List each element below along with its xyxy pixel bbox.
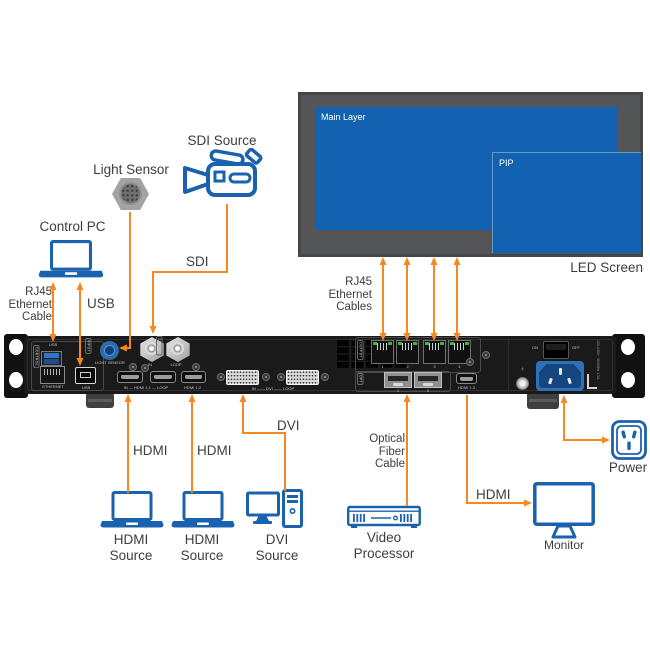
connection-diagram: Main Layer PIP LED Screen Control PC Lig… xyxy=(0,0,650,650)
dvi-loop-port xyxy=(286,370,319,385)
led-screen-caption: LED Screen xyxy=(555,260,643,276)
rj45-number-3: 3 xyxy=(423,365,446,369)
rj45-out-port-2 xyxy=(396,340,419,364)
hdmi-source-2-icon xyxy=(171,491,235,531)
hdmi-cable-1-label: HDMI xyxy=(133,443,173,459)
hdmi-1-3-label: HDMI 1.3 xyxy=(450,386,483,390)
sdi-camera-icon xyxy=(181,148,263,204)
dvi-cable-label: DVI xyxy=(277,418,309,434)
pip-label: PIP xyxy=(499,158,514,168)
hdmi-1-3-port xyxy=(456,373,477,384)
rj45-out-port-3 xyxy=(423,340,446,364)
light-sensor-icon xyxy=(112,178,149,210)
usb-a-label: USB xyxy=(45,343,61,347)
output-group-badge: OUTPUT xyxy=(357,340,364,360)
rj45-ethernet-cable-label: RJ45EthernetCable xyxy=(0,286,52,324)
ground-screw xyxy=(516,377,529,390)
hdmi-1-1-in-port xyxy=(117,371,143,383)
control-pc-icon xyxy=(38,240,104,281)
opt-port-1 xyxy=(384,372,412,388)
light-sensor-port xyxy=(100,341,119,360)
ground-symbol: ⏚ xyxy=(518,367,527,371)
on-label: ON xyxy=(529,346,541,350)
opt-port-2 xyxy=(414,372,442,388)
monitor-icon xyxy=(533,482,595,542)
opt-number-1: 1 xyxy=(384,389,412,393)
hdmi-1-2-port xyxy=(181,371,206,383)
mount-gland-left xyxy=(86,392,114,408)
dvi-cable xyxy=(243,399,285,491)
rj45-number-1: 1 xyxy=(371,365,394,369)
usb-cable-label: USB xyxy=(87,296,121,312)
power-switch xyxy=(543,341,569,359)
power-label: Power xyxy=(605,460,650,476)
rj45-number-2: 2 xyxy=(396,365,419,369)
input-group-badge: INPUT xyxy=(85,338,92,354)
rj45-ethernet-cables-label: RJ45EthernetCables xyxy=(304,276,372,314)
light-sensor-label: Light Sensor xyxy=(84,162,178,178)
light-sensor-port-label: LIGHT SENSOR xyxy=(95,361,124,365)
off-label: OFF xyxy=(569,346,583,350)
opt-number-2: 2 xyxy=(414,389,442,393)
hdmi-monitor-cable-label: HDMI xyxy=(476,487,518,503)
power-rating-label: 100-240V~ 50/60Hz 1.5A xyxy=(595,340,599,379)
video-processor-label: VideoProcessor xyxy=(346,530,422,562)
hdmi-source-1-icon xyxy=(100,491,164,531)
sdi-cable-label: SDI xyxy=(186,254,218,270)
pip-layer: PIP xyxy=(492,152,641,253)
hdmi-source-1-label: HDMISource xyxy=(97,532,165,564)
opt-group-badge: OPT xyxy=(357,373,364,385)
ethernet-label: ETHERNET xyxy=(34,385,72,389)
hdmi-1-1-loop-port xyxy=(150,371,176,383)
power-outlet-icon xyxy=(611,420,647,460)
main-layer-label: Main Layer xyxy=(321,112,366,122)
ethernet-port xyxy=(40,366,65,384)
led-screen: Main Layer PIP xyxy=(298,92,643,257)
control-pc-label: Control PC xyxy=(30,219,115,235)
sdi-group-badge: 12G-SDI xyxy=(156,336,163,355)
hdmi-cable-2-label: HDMI xyxy=(197,443,237,459)
hdmi-1-1-label: IN — HDMI 1.1 — LOOP xyxy=(110,386,182,390)
sdi-loop-label: LOOP xyxy=(166,363,186,367)
control-group-badge: CONTROL xyxy=(33,345,40,368)
usb-a-port xyxy=(41,351,62,366)
hdmi-1-2-label: HDMI 1.2 xyxy=(177,386,208,390)
hdmi-source-2-label: HDMISource xyxy=(168,532,236,564)
usb-b-port xyxy=(75,367,96,384)
dvi-in-port xyxy=(226,370,259,385)
dvi-source-label: DVISource xyxy=(245,532,309,564)
dvi-source-icon xyxy=(246,489,304,529)
usb-b-label: USB xyxy=(77,386,95,390)
rj45-out-port-1 xyxy=(371,340,394,364)
sdi-source-label: SDI Source xyxy=(177,133,267,149)
ac-inlet xyxy=(536,361,584,391)
sdi-in-label: IN xyxy=(141,363,159,367)
video-processor-icon xyxy=(347,503,421,529)
power-cable xyxy=(564,400,604,440)
optical-fiber-cable-label: OpticalFiberCable xyxy=(353,433,405,471)
dvi-group-label: IN —— DVI —— LOOP xyxy=(228,387,318,391)
light-sensor-cable xyxy=(124,212,130,348)
